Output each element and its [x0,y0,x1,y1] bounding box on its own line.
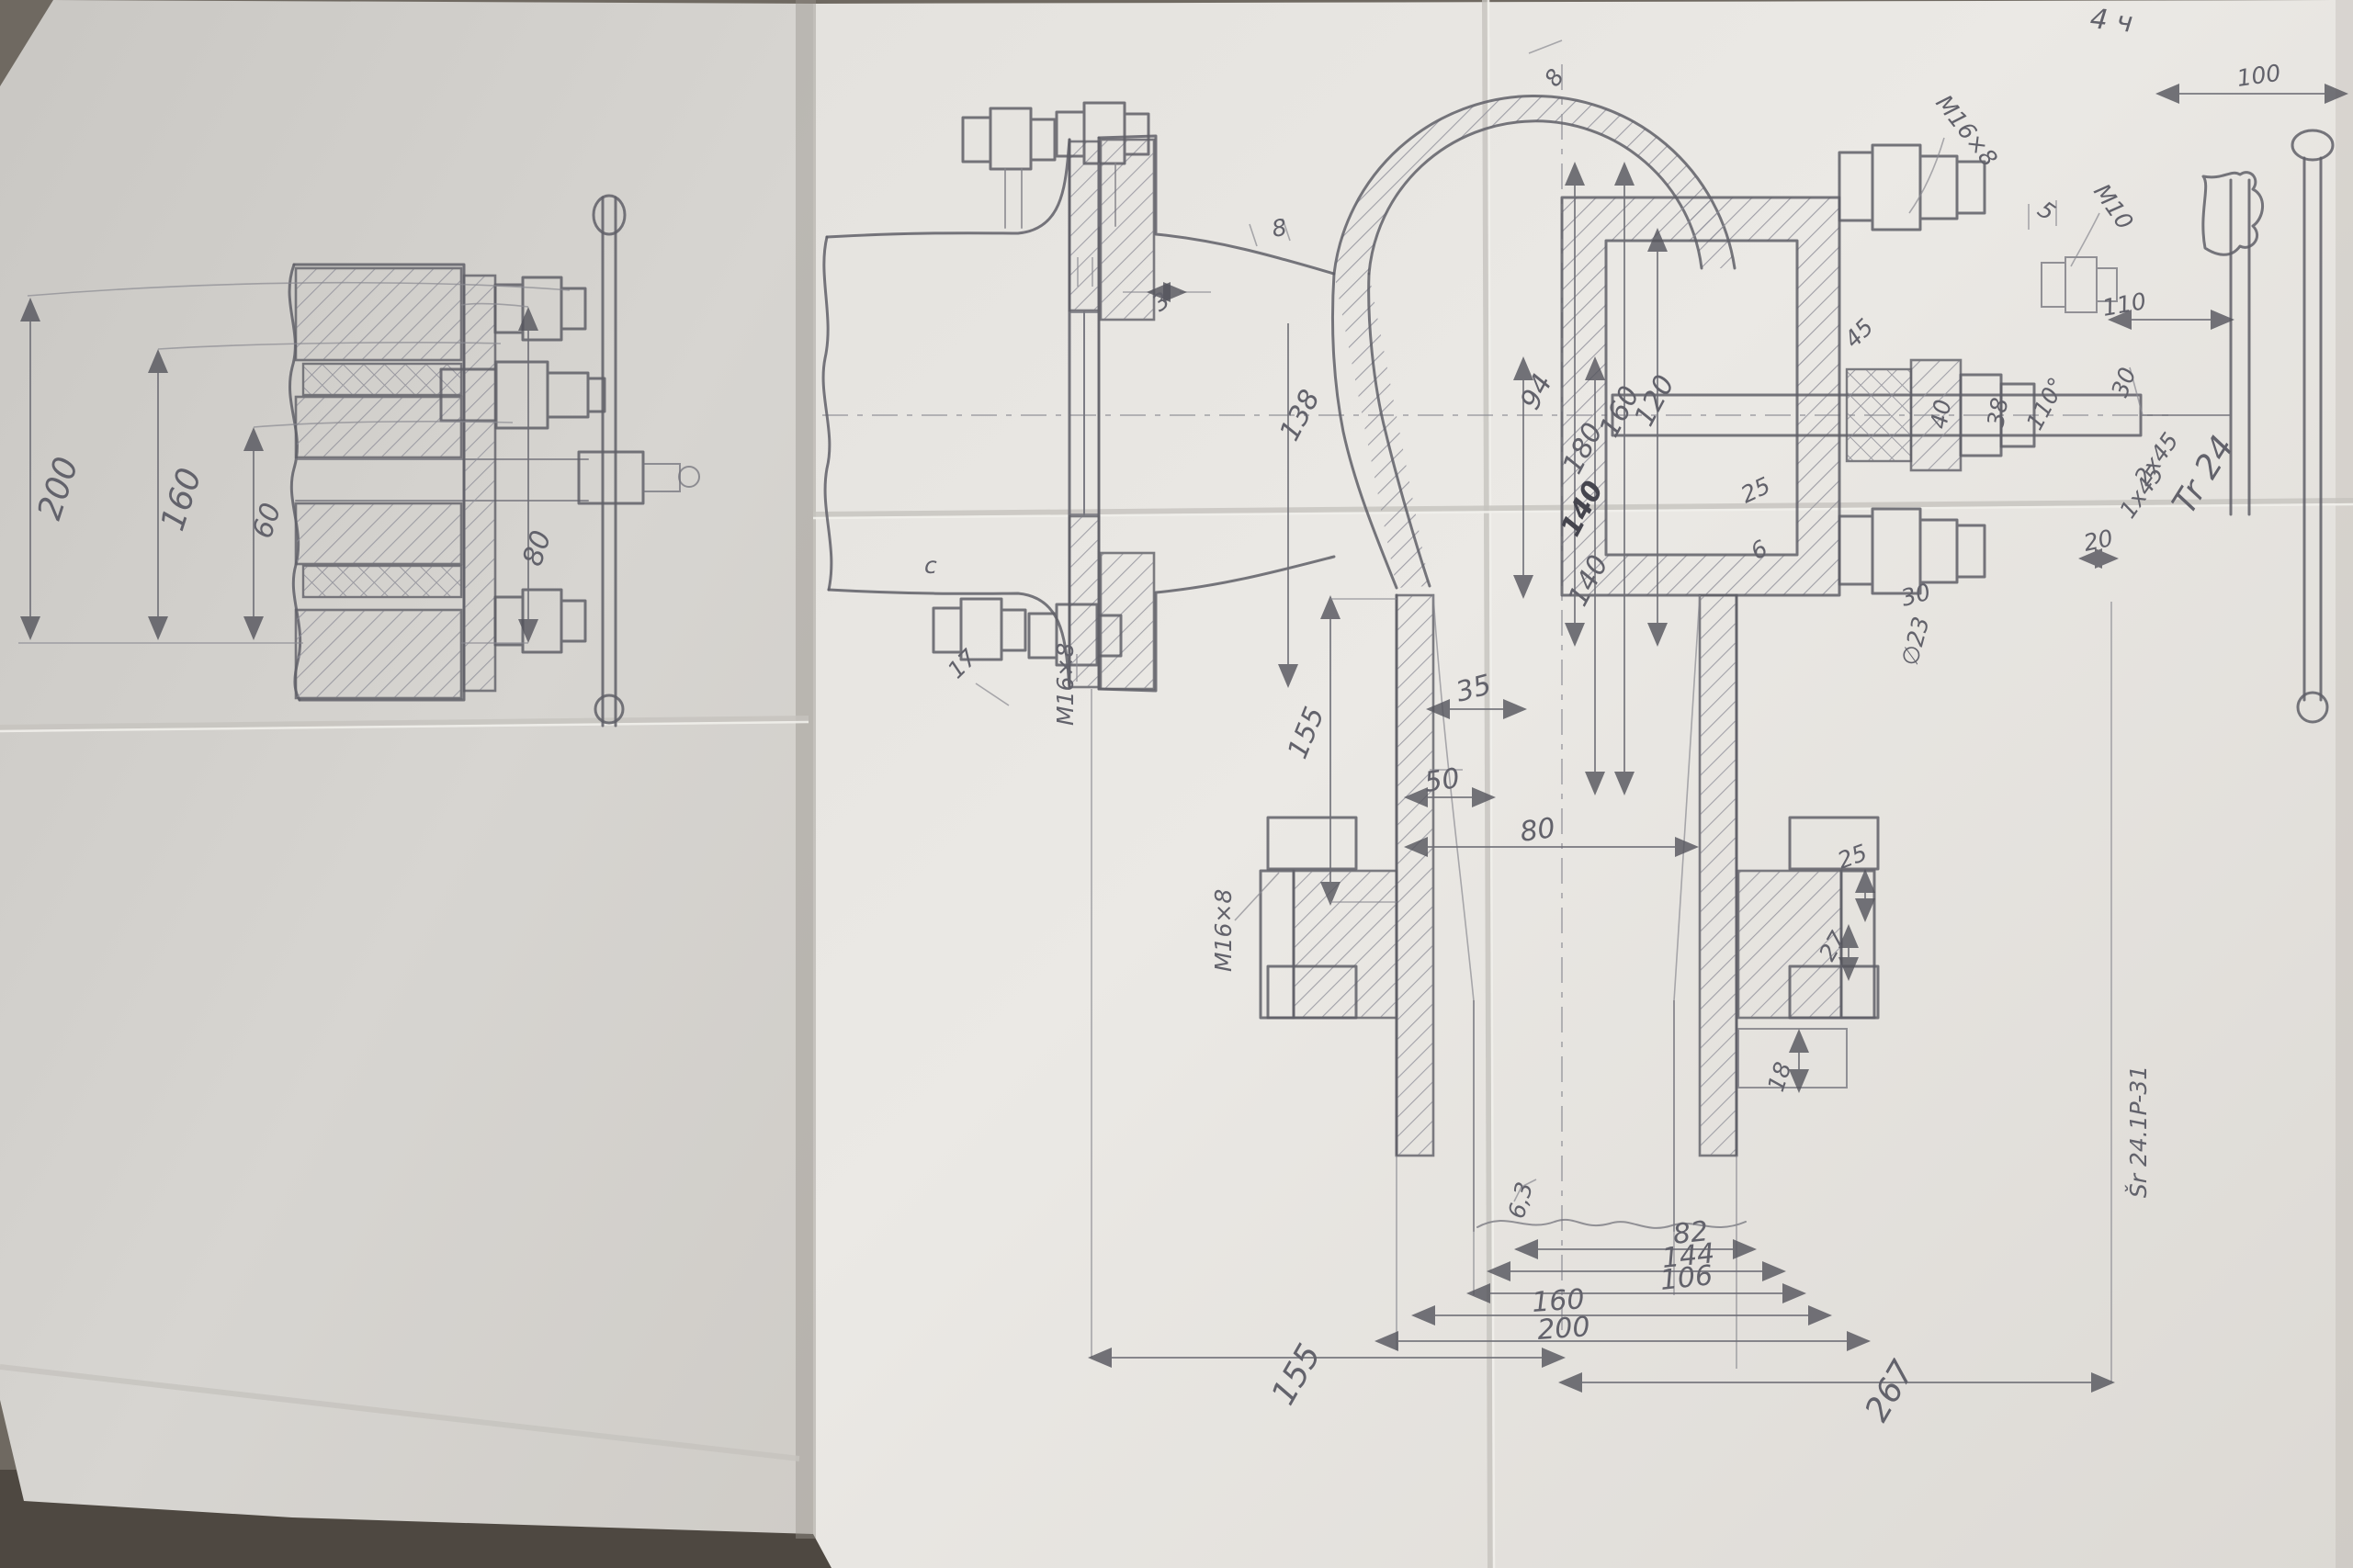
pencil-stroke [1101,553,1154,689]
dim-106-label: 106 [1658,1259,1714,1297]
bottom-flange-left [1294,871,1397,1018]
cover-plate-hatch [464,276,495,691]
pencil-stroke [1700,595,1736,1156]
dim-80-label: 80 [1518,812,1557,849]
flange-section-hatch [296,610,461,698]
pencil-stroke [1397,595,1433,1156]
thread-m16-mid-label: M16×8 [1052,643,1079,726]
mark-c-label: c [924,552,937,579]
paper-overlap-shadow [796,0,816,1539]
pencil-stroke [1069,141,1099,310]
right-edge-shade [2336,0,2353,1568]
dim-50-label: 50 [1422,762,1462,799]
flange-section-hatch [296,268,461,360]
dim-38-label: 38 [1982,396,2013,429]
drawing-canvas: 200 160 60 80 [0,0,2353,1568]
flange-section-hatch [296,397,461,457]
left-paper-sheet [0,0,813,1534]
edge-reference-note: Šr 24.1P-31 [2124,1066,2152,1198]
thread-m16-bottom-label: M16×8 [1210,889,1237,972]
pencil-stroke [1847,369,1911,461]
dim-200-bottom-label: 200 [1536,1311,1591,1347]
corner-page-note: 4 ч [2088,3,2134,39]
dim-40-label: 40 [1925,398,1956,431]
packing-crosshatch [303,566,461,597]
photo-of-pencil-drawings: 200 160 60 80 [0,0,2353,1568]
flange-section-hatch [296,503,461,564]
packing-crosshatch [303,364,461,395]
